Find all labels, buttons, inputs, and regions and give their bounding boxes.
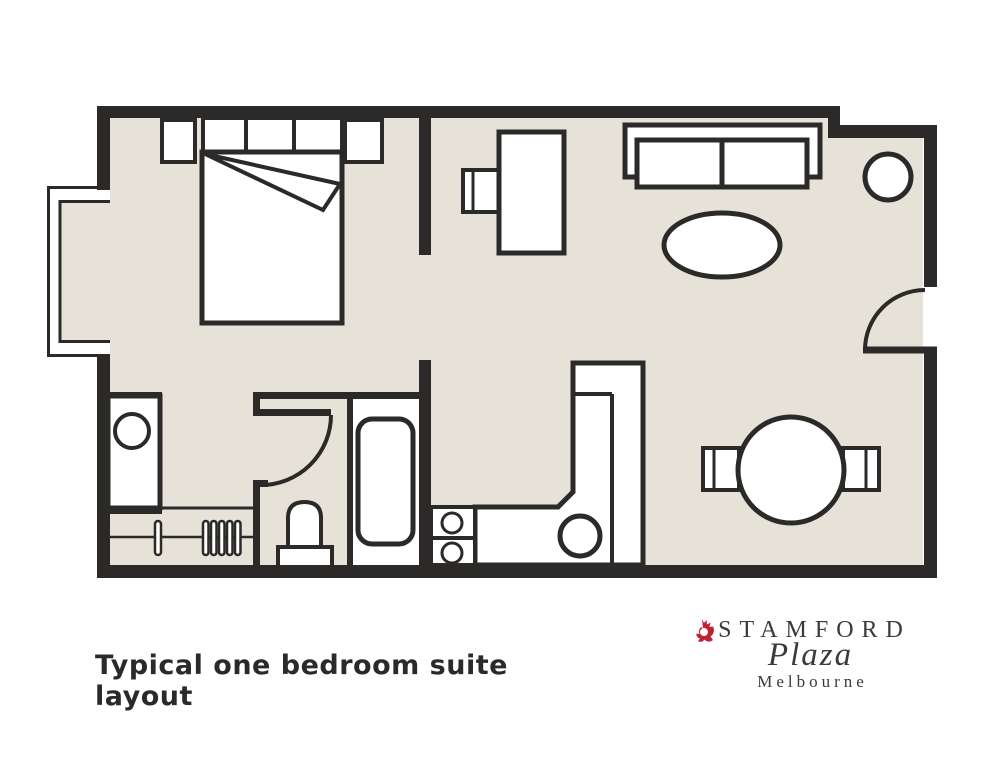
caption: Typical one bedroom suite layout [95, 650, 615, 712]
vanity-basin [108, 396, 160, 508]
kitchen-sink [560, 516, 600, 556]
coffee-table [664, 213, 780, 277]
round-side-table [865, 154, 911, 200]
dining-table [738, 417, 844, 523]
bed-headboard [203, 118, 342, 152]
desk-chair [463, 170, 499, 212]
two-burner-cooktop [431, 507, 475, 565]
nightstand-left [162, 120, 195, 162]
dining-chair-left [703, 448, 739, 490]
bay-window [47, 186, 110, 357]
logo-script: Plaza [688, 640, 933, 671]
dining-chair-right [843, 448, 879, 490]
nightstand-right [345, 120, 382, 162]
logo-city: Melbourne [692, 673, 933, 690]
sofa [625, 125, 820, 187]
bathtub [358, 419, 413, 544]
stamford-plaza-logo: STAMFORD Plaza Melbourne [688, 618, 933, 690]
stamford-crest-icon [688, 618, 718, 650]
desk [499, 132, 564, 253]
page: Typical one bedroom suite layout STAMFOR… [0, 0, 986, 768]
